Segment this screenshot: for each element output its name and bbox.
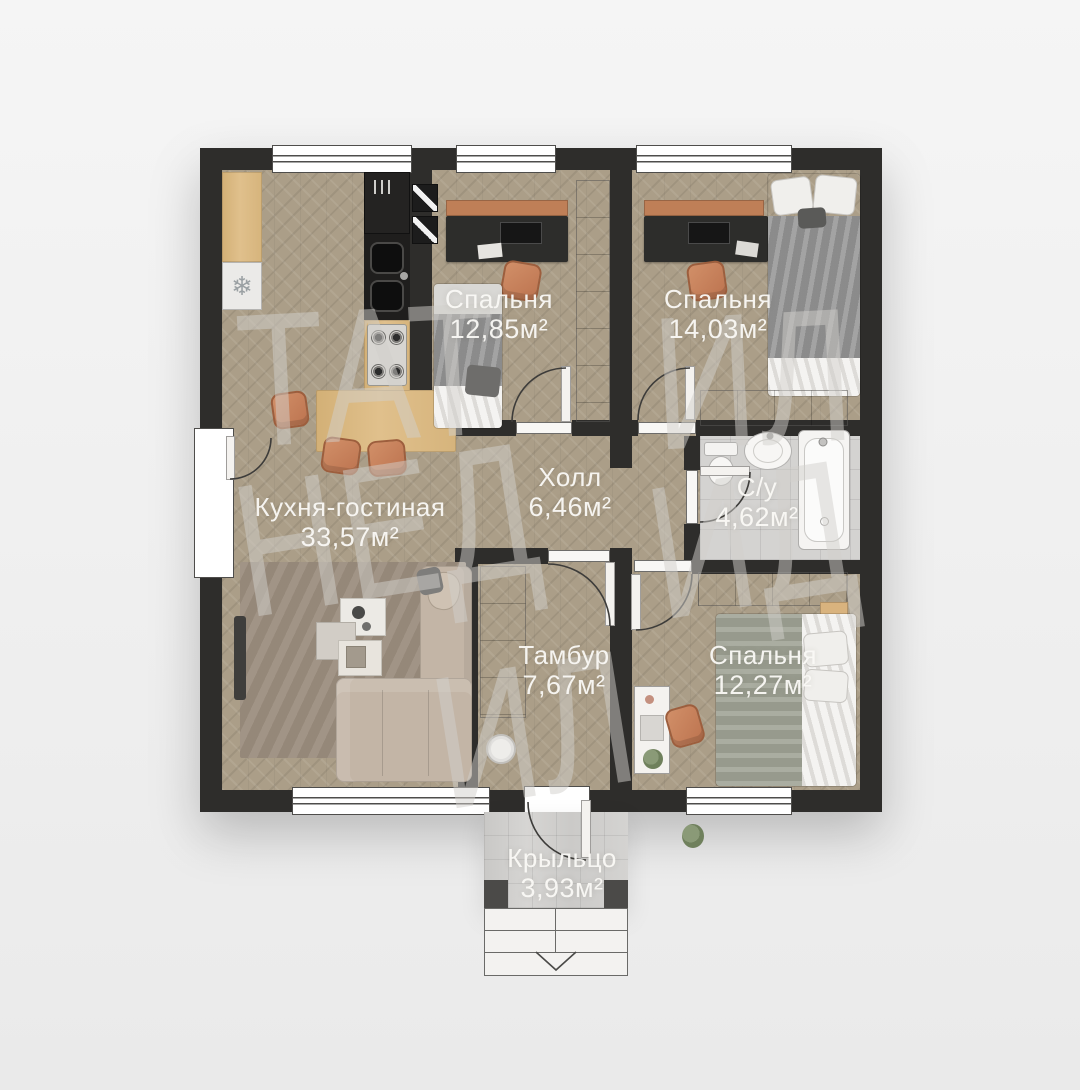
room-label-vestibule: Тамбур 7,67м² (518, 640, 609, 701)
sink (744, 432, 792, 470)
wall-segment (684, 436, 700, 470)
door-threshold (516, 422, 572, 434)
faucet-icon (400, 272, 408, 280)
room-name: Спальня (664, 284, 772, 314)
bed-throw (465, 364, 502, 397)
vanity-table (634, 686, 670, 774)
burner-icon (371, 364, 386, 379)
paper (735, 241, 759, 258)
window (686, 787, 792, 815)
wall-segment (684, 524, 700, 560)
radiator (234, 616, 246, 700)
table-decor (352, 606, 365, 619)
cushion-seam (382, 690, 383, 776)
room-label-bedroom-2: Спальня 14,03м² (664, 284, 772, 345)
sink-bowl (370, 280, 404, 312)
table-decor (362, 622, 371, 631)
door-threshold (638, 422, 696, 434)
wall-segment (455, 548, 548, 564)
door-leaf (631, 574, 641, 630)
porch-pillar (484, 880, 508, 908)
bar-stool (270, 390, 311, 431)
desk (446, 216, 568, 262)
stair-step-line (485, 952, 627, 953)
room-area: 4,62м² (715, 502, 798, 533)
room-label-porch: Крыльцо 3,93м² (507, 843, 617, 904)
stairs (484, 908, 628, 976)
bed-pillow (797, 207, 826, 229)
paper (477, 243, 502, 259)
floor-plan-page: { "plan": { "rooms": [ {"id": "bedroom-1… (0, 0, 1080, 1090)
cushion-seam (428, 690, 429, 776)
fridge: ❄ (222, 262, 262, 310)
bar-stool (320, 436, 363, 477)
door-threshold (686, 470, 698, 524)
door-leaf (605, 562, 615, 626)
knife-icon (381, 180, 383, 194)
table-decor (346, 646, 366, 668)
stair-divider-line (555, 909, 556, 952)
snowflake-icon: ❄ (231, 271, 253, 301)
room-name: Спальня (445, 284, 553, 314)
round-rug (486, 734, 516, 764)
wall-segment (572, 420, 610, 436)
wall-segment (610, 170, 632, 468)
wardrobe (576, 180, 610, 422)
vent-shaft-icon (412, 184, 438, 212)
bed (768, 174, 860, 396)
knife-icon (374, 180, 376, 194)
door-leaf (226, 436, 235, 480)
plant-icon (643, 749, 663, 769)
window (456, 145, 556, 173)
vase-icon (645, 695, 654, 704)
floor-plan-canvas: ❄ (0, 0, 1080, 1090)
wardrobe (698, 572, 848, 606)
sofa-pillow (416, 566, 445, 596)
stair-step-line (485, 930, 627, 931)
burner-icon (389, 330, 404, 345)
knife-icon (388, 180, 390, 194)
sofa (336, 678, 472, 782)
room-area: 7,67м² (518, 670, 609, 701)
kitchen-sink-counter (364, 234, 410, 320)
window (636, 145, 792, 173)
drain-icon (820, 517, 829, 526)
kitchen-cabinet (222, 172, 262, 262)
room-label-bedroom-3: Спальня 12,27м² (709, 640, 817, 701)
wardrobe (700, 390, 848, 426)
room-area: 14,03м² (664, 314, 772, 345)
room-name: Спальня (709, 640, 817, 670)
room-name: Тамбур (518, 640, 609, 670)
burner-icon (389, 364, 404, 379)
laptop (688, 222, 730, 244)
room-name: Кухня-гостиная (255, 492, 446, 522)
desk (644, 216, 768, 262)
room-label-hall: Холл 6,46м² (528, 462, 611, 523)
bed-blanket (768, 216, 860, 358)
room-area: 3,93м² (507, 873, 617, 904)
burner-icon (371, 330, 386, 345)
plant-icon (682, 824, 704, 848)
vent-shaft-icon (412, 216, 438, 244)
desk-shelf (446, 200, 568, 216)
room-name: С/у (715, 472, 798, 502)
window (272, 145, 412, 173)
room-label-bedroom-1: Спальня 12,85м² (445, 284, 553, 345)
bar-stool (367, 438, 408, 477)
toilet (704, 442, 738, 456)
room-area: 6,46м² (528, 492, 611, 523)
room-label-kitchen-living: Кухня-гостиная 33,57м² (255, 492, 446, 553)
room-area: 12,27м² (709, 670, 817, 701)
room-area: 33,57м² (255, 522, 446, 553)
door-leaf (685, 366, 695, 420)
door-threshold (634, 560, 692, 572)
bathtub (798, 430, 850, 550)
window (292, 787, 490, 815)
door-threshold (548, 550, 610, 562)
kitchen-tall-cabinet (364, 172, 410, 234)
laptop (640, 715, 664, 741)
room-area: 12,85м² (445, 314, 553, 345)
stove (367, 324, 407, 386)
room-name: Холл (528, 462, 611, 492)
desk-shelf (644, 200, 764, 216)
room-label-bathroom: С/у 4,62м² (715, 472, 798, 533)
sink-bowl (370, 242, 404, 274)
laptop (500, 222, 542, 244)
bathtub-basin (804, 438, 844, 542)
room-name: Крыльцо (507, 843, 617, 873)
sink-basin (753, 439, 783, 463)
door-leaf (561, 366, 571, 422)
